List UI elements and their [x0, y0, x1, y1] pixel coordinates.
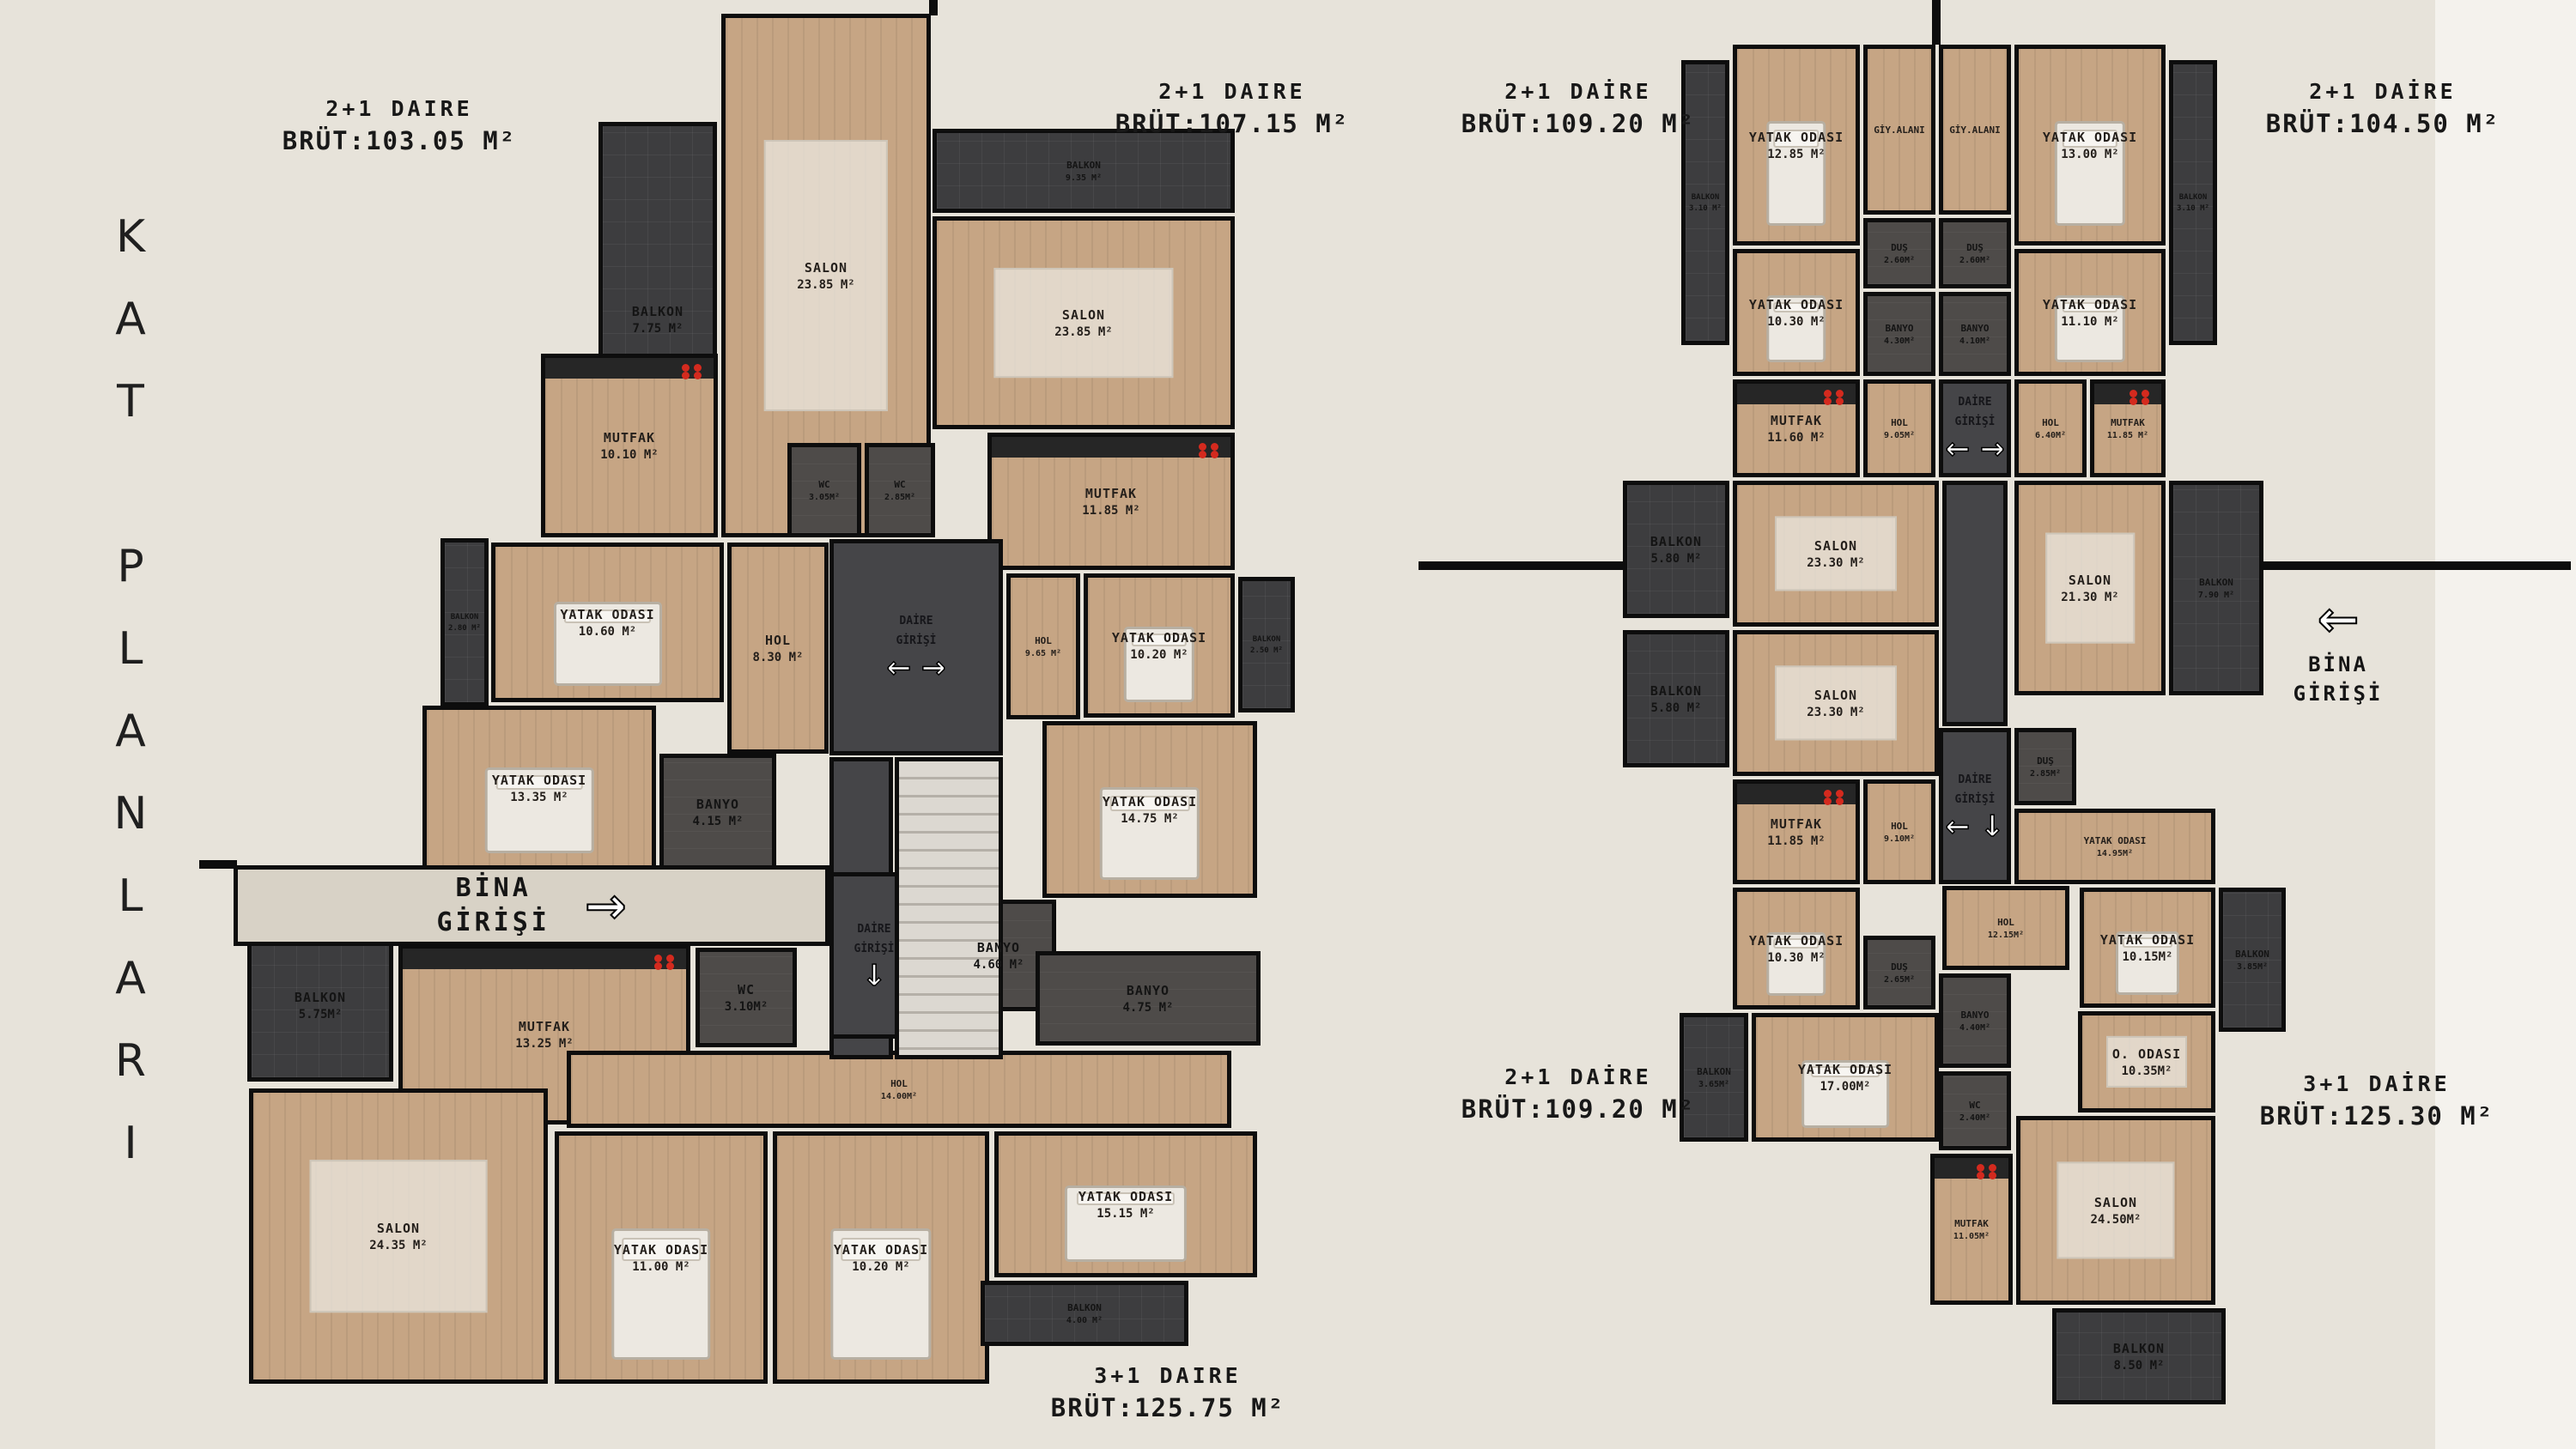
room-name: BALKON [1066, 160, 1102, 171]
daire-girisi-label-line2: GİRİŞİ [1955, 414, 1996, 431]
daire-girisi-label: DAİRE [1958, 394, 1991, 411]
room-name: BANYO [692, 797, 743, 812]
room-name: BALKON [1689, 193, 1722, 202]
room-salon-23-30-m: SALON23.30 M² [1733, 630, 1939, 776]
room-salon-23-30-m: SALON23.30 M² [1733, 481, 1939, 627]
room-label: MUTFAK11.60 M² [1767, 413, 1825, 445]
bed-icon [2055, 121, 2125, 226]
bed-icon [1100, 787, 1200, 880]
room-banyo-4-30m: BANYO4.30M² [1863, 292, 1935, 376]
stove-hob-icon [1211, 443, 1218, 451]
kitchen-counter-icon [2094, 384, 2161, 404]
room-area: 11.85 M² [1082, 504, 1139, 518]
room-label: MUTFAK13.25 M² [515, 1019, 573, 1051]
room-label: GİY.ALANI [1874, 124, 1925, 136]
room-name: BALKON [1250, 635, 1283, 644]
room-name: HOL [1988, 917, 2024, 928]
room-label: HOL14.00M² [881, 1078, 917, 1101]
room-label: YATAK ODASI14.95M² [2084, 835, 2147, 858]
bed-icon [2055, 295, 2125, 362]
room-name: BALKON [448, 613, 481, 621]
apartment-type: 3+1 DAİRE [2239, 1071, 2514, 1096]
room-label: BALKON3.10 M² [2177, 193, 2209, 213]
room-area: 7.90 M² [2198, 591, 2234, 600]
entrance-arrow-icon: → [585, 881, 627, 931]
room-area: 2.80 M² [448, 624, 481, 633]
entry-arrow-icon: ← → [1946, 434, 2005, 464]
room-yatak-odasi-14-75-m: YATAK ODASI14.75 M² [1042, 721, 1257, 898]
room-name: MUTFAK [515, 1019, 573, 1034]
apartment-type: 3+1 DAIRE [1022, 1363, 1314, 1388]
daire-girisi-label-line2: GİRİŞİ [1955, 791, 1996, 809]
room-label: BALKON5.80 M² [1650, 534, 1702, 566]
room-name: DUŞ [2030, 755, 2061, 767]
room-name: BALKON [2235, 949, 2269, 960]
entry-arrow-icon: ← → [887, 653, 946, 682]
room-balkon-3-85m: BALKON3.85M² [2219, 888, 2286, 1032]
room-area: 8.50 M² [2113, 1359, 2165, 1373]
room-name: HOL [881, 1078, 917, 1089]
room-hol-12-15m: HOL12.15M² [1942, 886, 2069, 970]
apartment-label-2-1-dai-re-br-t-104-50-m: 2+1 DAİREBRÜT:104.50 M² [2254, 79, 2512, 138]
bed-icon [2116, 931, 2179, 995]
room-du-2-60m: DUŞ2.60M² [1863, 218, 1935, 288]
floor-plan-canvas: KATPLANLARI BALKON7.75 M²SALON23.85 M²MU… [0, 0, 2576, 1449]
room-label: DUŞ2.60M² [1884, 242, 1915, 265]
room-label: WC3.10M² [725, 982, 769, 1014]
kitchen-counter-icon [992, 437, 1230, 458]
room-balkon-7-90-m: BALKON7.90 M² [2169, 481, 2263, 695]
rug-icon [993, 268, 1173, 378]
room-area: 13.25 M² [515, 1037, 573, 1051]
wall-line [929, 0, 938, 15]
room-label: BALKON3.85M² [2235, 949, 2269, 972]
room-label: HOL8.30 M² [752, 633, 803, 664]
room-name: BANYO [1122, 983, 1173, 998]
room-label: MUTFAK11.85 M² [2107, 417, 2148, 440]
room-hol-9-65-m: HOL9.65 M² [1006, 573, 1080, 719]
room-label: BALKON8.50 M² [2113, 1341, 2165, 1373]
building-entrance: ←BİNAGİRİŞİ [2274, 594, 2403, 708]
bed-icon [830, 1228, 931, 1361]
room-area: 3.10 M² [2177, 204, 2209, 213]
wall-line [199, 860, 237, 869]
room-label: BANYO4.75 M² [1122, 983, 1173, 1015]
room-name: MUTFAK [1082, 486, 1139, 501]
kitchen-counter-icon [1737, 784, 1856, 804]
room-name: BALKON [2177, 193, 2209, 202]
daire-girisi-label: DAİRE [857, 921, 890, 938]
room-name: DUŞ [1959, 242, 1990, 253]
room-label: MUTFAK11.85 M² [1082, 486, 1139, 518]
room-area: 5.80 M² [1650, 552, 1702, 566]
apartment-label-2-1-daire-br-t-107-15-m: 2+1 DAIREBRÜT:107.15 M² [1091, 79, 1374, 138]
entrance-arrow-icon: ← [2318, 594, 2360, 644]
room-wc-2-85m: WC2.85M² [865, 443, 935, 537]
kitchen-counter-icon [403, 949, 686, 969]
room-balkon-5-75m: BALKON5.75M² [247, 929, 393, 1082]
apartment-area: BRÜT:109.20 M² [1449, 109, 1707, 138]
bed-icon [553, 602, 661, 686]
room-area: 4.00 M² [1066, 1316, 1103, 1325]
room-name: BALKON [1650, 683, 1702, 699]
bed-icon [1124, 627, 1194, 702]
room-label: WC3.05M² [809, 479, 840, 502]
apartment-area: BRÜT:109.20 M² [1449, 1094, 1707, 1124]
room-label: BANYO4.40M² [1959, 1009, 1990, 1033]
page-title-letter: A [96, 278, 165, 361]
room-mutfak-11-85-m: MUTFAK11.85 M² [1733, 779, 1860, 884]
room-name: DUŞ [1884, 242, 1915, 253]
room-mutfak-11-05m: MUTFAK11.05M² [1930, 1154, 2013, 1305]
room-yatak-odasi-11-00-m: YATAK ODASI11.00 M² [555, 1131, 768, 1384]
room-area: 2.85M² [884, 493, 915, 502]
apartment-type: 2+1 DAİRE [1449, 79, 1707, 104]
page-title-gap [96, 443, 165, 525]
room-label: BANYO4.30M² [1884, 323, 1915, 346]
wall-line [1932, 0, 1941, 45]
room-label: BANYO4.10M² [1959, 323, 1990, 346]
apartment-area: BRÜT:125.75 M² [1022, 1393, 1314, 1422]
room-label: BALKON4.00 M² [1066, 1302, 1103, 1325]
room-area: 3.10M² [725, 1000, 769, 1014]
page-title: KATPLANLARI [96, 196, 165, 1185]
room-name: BANYO [1884, 323, 1915, 334]
bed-icon [1065, 1185, 1187, 1262]
page-title-letter: R [96, 1020, 165, 1102]
room-area: 4.75 M² [1122, 1001, 1173, 1015]
apartment-entry-core: DAİREGİRİŞİ← → [829, 539, 1003, 755]
wall-line [1419, 561, 1625, 570]
room-salon-24-50m: SALON24.50M² [2016, 1116, 2215, 1305]
room-area: 10.10 M² [600, 448, 658, 462]
room-area: 14.95M² [2084, 849, 2147, 858]
apartment-entry-core: DAİREGİRİŞİ← ↓ [1939, 728, 2011, 884]
room-balkon-4-00-m: BALKON4.00 M² [981, 1281, 1188, 1346]
room-label: MUTFAK11.85 M² [1767, 816, 1825, 848]
room-hol-8-30-m: HOL8.30 M² [727, 543, 829, 754]
room-balkon-5-80-m: BALKON5.80 M² [1623, 481, 1729, 618]
stove-hob-icon [694, 364, 702, 372]
apartment-type: 2+1 DAİRE [2254, 79, 2512, 104]
room-area: 4.10M² [1959, 336, 1990, 346]
bina-girisi-label: BİNAGİRİŞİ [2293, 651, 2384, 708]
room-name: YATAK ODASI [2084, 835, 2147, 846]
rug-icon [2106, 1036, 2187, 1088]
bed-icon [1801, 1060, 1889, 1128]
room-area: 12.15M² [1988, 931, 2024, 940]
room-area: 11.85 M² [1767, 834, 1825, 848]
room-label: BALKON3.10 M² [1689, 193, 1722, 213]
room-name: BALKON [295, 990, 346, 1005]
room-balkon-9-35-m: BALKON9.35 M² [933, 129, 1235, 213]
right-margin-panel [2435, 0, 2576, 1449]
room-name: BALKON [1650, 534, 1702, 549]
room-du-2-60m: DUŞ2.60M² [1939, 218, 2011, 288]
apartment-area: BRÜT:125.30 M² [2239, 1101, 2514, 1131]
room-label: BANYO4.15 M² [692, 797, 743, 828]
room-area: 8.30 M² [752, 651, 803, 664]
room-banyo-4-40m: BANYO4.40M² [1939, 973, 2011, 1068]
room-name: GİY.ALANI [1874, 124, 1925, 136]
apartment-area: BRÜT:104.50 M² [2254, 109, 2512, 138]
apartment-entry-core: DAİREGİRİŞİ← → [1939, 379, 2011, 477]
room-name: BALKON [2113, 1341, 2165, 1356]
room-hol-9-10m: HOL9.10M² [1863, 779, 1935, 884]
room-label: WC2.40M² [1959, 1100, 1990, 1123]
room-label: BALKON9.35 M² [1066, 160, 1102, 183]
room-area: 4.15 M² [692, 815, 743, 828]
apartment-label-3-1-daire-br-t-125-75-m: 3+1 DAIREBRÜT:125.75 M² [1022, 1363, 1314, 1422]
room-label: DUŞ2.85M² [2030, 755, 2061, 779]
room-salon-23-85-m: SALON23.85 M² [933, 216, 1235, 429]
room-name: MUTFAK [2107, 417, 2148, 428]
room-yatak-odasi-10-30-m: YATAK ODASI10.30 M² [1733, 249, 1860, 376]
apartment-area: BRÜT:107.15 M² [1091, 109, 1374, 138]
daire-girisi-label-line2: GİRİŞİ [896, 633, 937, 650]
room-area: 2.85M² [2030, 769, 2061, 779]
rug-icon [2045, 533, 2135, 644]
room-gi-y-alani-b: GİY.ALANI [1939, 45, 2011, 215]
room-yatak-odasi-15-15-m: YATAK ODASI15.15 M² [994, 1131, 1257, 1277]
room-label: GİY.ALANI [1949, 124, 2001, 136]
daire-girisi-label: DAİRE [899, 613, 933, 630]
room-area: 11.60 M² [1767, 431, 1825, 445]
page-title-letter: T [96, 361, 165, 443]
room-banyo-4-10m: BANYO4.10M² [1939, 292, 2011, 376]
room-yatak-odasi-17-00m: YATAK ODASI17.00M² [1752, 1013, 1939, 1142]
room-name: BALKON [632, 304, 683, 319]
room-name: HOL [752, 633, 803, 648]
room-area: 7.75 M² [632, 322, 683, 336]
room-name: HOL [1884, 821, 1915, 832]
room-area: 14.00M² [881, 1092, 917, 1101]
rug-icon [1775, 665, 1897, 740]
core-shaft [1942, 481, 2008, 726]
room-yatak-odasi-10-20-m: YATAK ODASI10.20 M² [773, 1131, 989, 1384]
room-name: HOL [1884, 417, 1915, 428]
apartment-label-2-1-dai-re-br-t-109-20-m: 2+1 DAİREBRÜT:109.20 M² [1449, 79, 1707, 138]
room-area: 2.65M² [1884, 975, 1915, 985]
room-du-2-65m: DUŞ2.65M² [1863, 936, 1935, 1009]
room-area: 9.10M² [1884, 834, 1915, 844]
room-hol-9-05m: HOL9.05M² [1863, 379, 1935, 477]
stove-hob-icon [1989, 1164, 1996, 1172]
bed-icon [485, 767, 594, 854]
room-label: HOL12.15M² [1988, 917, 2024, 940]
room-hol-6-40m: HOL6.40M² [2014, 379, 2087, 477]
entry-arrow-icon: ← ↓ [1946, 812, 2005, 841]
room-name: MUTFAK [600, 430, 658, 446]
rug-icon [310, 1160, 488, 1313]
page-title-letter: L [96, 608, 165, 690]
room-area: 3.85M² [2235, 962, 2269, 972]
room-mutfak-11-85-m: MUTFAK11.85 M² [2090, 379, 2166, 477]
room-name: MUTFAK [1953, 1218, 1990, 1229]
entry-arrow-icon: ↓ [862, 961, 887, 991]
room-yatak-odasi-12-85-m: YATAK ODASI12.85 M² [1733, 45, 1860, 246]
room-wc-2-40m: WC2.40M² [1939, 1071, 2011, 1150]
apartment-label-3-1-dai-re-br-t-125-30-m: 3+1 DAİREBRÜT:125.30 M² [2239, 1071, 2514, 1131]
stove-hob-icon [2142, 390, 2149, 397]
room-area: 2.60M² [1959, 256, 1990, 265]
page-title-letter: N [96, 773, 165, 855]
room-label: BALKON2.50 M² [1250, 635, 1283, 655]
apartment-area: BRÜT:103.05 M² [258, 126, 541, 155]
room-banyo-4-75-m: BANYO4.75 M² [1036, 951, 1261, 1046]
apartment-type: 2+1 DAİRE [1449, 1064, 1707, 1089]
room-label: DUŞ2.60M² [1959, 242, 1990, 265]
room-area: 2.60M² [1884, 256, 1915, 265]
room-area: 9.65 M² [1025, 649, 1061, 658]
page-title-letter: A [96, 937, 165, 1020]
room-yatak-odasi-10-15m: YATAK ODASI10.15M² [2080, 888, 2215, 1008]
room-balkon-2-80-m: BALKON2.80 M² [440, 538, 489, 706]
room-area: 3.10 M² [1689, 204, 1722, 213]
room-label: BALKON7.90 M² [2198, 577, 2234, 600]
room-name: HOL [1025, 635, 1061, 646]
room-balkon-5-80-m: BALKON5.80 M² [1623, 630, 1729, 767]
room-name: WC [725, 982, 769, 997]
room-label: HOL6.40M² [2035, 417, 2066, 440]
page-title-letter: P [96, 525, 165, 608]
bed-icon [1766, 121, 1826, 226]
daire-girisi-label-line2: GİRİŞİ [854, 941, 895, 958]
room-label: MUTFAK10.10 M² [600, 430, 658, 462]
wall-line [2263, 561, 2571, 570]
apartment-type: 2+1 DAIRE [1091, 79, 1374, 104]
stove-hob-icon [666, 955, 674, 962]
room-yatak-odasi-14-95m: YATAK ODASI14.95M² [2014, 809, 2215, 884]
room-area: 5.75M² [295, 1008, 346, 1022]
room-label: BALKON5.80 M² [1650, 683, 1702, 715]
room-label: DUŞ2.65M² [1884, 961, 1915, 985]
stove-hob-icon [1836, 390, 1844, 397]
daire-girisi-label: DAİRE [1958, 772, 1991, 789]
room-balkon-3-10-m: BALKON3.10 M² [2169, 60, 2217, 345]
rug-icon [764, 140, 888, 411]
kitchen-counter-icon [545, 358, 714, 379]
room-yatak-odasi-13-00-m: YATAK ODASI13.00 M² [2014, 45, 2166, 246]
room-area: 9.05M² [1884, 431, 1915, 440]
room-area: 5.80 M² [1650, 701, 1702, 715]
apartment-label-2-1-dai-re-br-t-109-20-m: 2+1 DAİREBRÜT:109.20 M² [1449, 1064, 1707, 1124]
room-mutfak-11-60-m: MUTFAK11.60 M² [1733, 379, 1860, 477]
room-mutfak-10-10-m: MUTFAK10.10 M² [541, 354, 718, 537]
staircase [895, 757, 1003, 1059]
bed-icon [1766, 295, 1826, 362]
room-salon-24-35-m: SALON24.35 M² [249, 1088, 548, 1384]
apartment-type: 2+1 DAIRE [258, 96, 541, 121]
room-area: 3.05M² [809, 493, 840, 502]
room-area: 2.50 M² [1250, 646, 1283, 655]
room-yatak-odasi-10-20-m: YATAK ODASI10.20 M² [1084, 573, 1235, 718]
room-balkon-8-50-m: BALKON8.50 M² [2052, 1308, 2226, 1404]
room-hol-14-00m: HOL14.00M² [567, 1051, 1231, 1128]
room-name: BALKON [1066, 1302, 1103, 1313]
room-name: MUTFAK [1767, 413, 1825, 428]
room-o-odasi-10-35m: O. ODASI10.35M² [2078, 1011, 2215, 1113]
room-yatak-odasi-13-35-m: YATAK ODASI13.35 M² [422, 706, 656, 870]
bed-icon [611, 1228, 710, 1361]
room-area: 4.40M² [1959, 1023, 1990, 1033]
kitchen-counter-icon [1737, 384, 1856, 404]
room-area: 9.35 M² [1066, 173, 1102, 183]
rug-icon [2057, 1161, 2174, 1258]
building-entrance: BİNAGİRİŞİ→ [234, 865, 829, 946]
apartment-label-2-1-daire-br-t-103-05-m: 2+1 DAIREBRÜT:103.05 M² [258, 96, 541, 155]
stove-hob-icon [1836, 790, 1844, 797]
page-title-letter: L [96, 855, 165, 937]
room-area: 11.05M² [1953, 1232, 1990, 1241]
bed-icon [1766, 932, 1826, 997]
bina-girisi-label: BİNAGİRİŞİ [437, 871, 550, 941]
room-yatak-odasi-10-30-m: YATAK ODASI10.30 M² [1733, 888, 1860, 1009]
room-label: BALKON5.75M² [295, 990, 346, 1022]
room-name: BANYO [1959, 323, 1990, 334]
room-name: WC [884, 479, 915, 490]
room-name: WC [1959, 1100, 1990, 1111]
room-area: 6.40M² [2035, 431, 2066, 440]
room-banyo-4-15-m: BANYO4.15 M² [659, 754, 776, 870]
room-label: BALKON2.80 M² [448, 613, 481, 633]
room-label: MUTFAK11.05M² [1953, 1218, 1990, 1241]
room-salon-21-30-m: SALON21.30 M² [2014, 481, 2166, 695]
room-mutfak-11-85-m: MUTFAK11.85 M² [987, 433, 1235, 570]
room-area: 2.40M² [1959, 1113, 1990, 1123]
room-name: BALKON [2198, 577, 2234, 588]
room-wc-3-10m: WC3.10M² [696, 948, 797, 1047]
room-label: WC2.85M² [884, 479, 915, 502]
page-title-letter: I [96, 1102, 165, 1185]
room-balkon-2-50-m: BALKON2.50 M² [1238, 577, 1295, 712]
room-area: 4.30M² [1884, 336, 1915, 346]
page-title-letter: K [96, 196, 165, 278]
rug-icon [1775, 516, 1897, 591]
room-gi-y-alani-b: GİY.ALANI [1863, 45, 1935, 215]
page-title-letter: A [96, 690, 165, 773]
room-area: 11.85 M² [2107, 431, 2148, 440]
room-name: WC [809, 479, 840, 490]
room-name: DUŞ [1884, 961, 1915, 973]
room-label: HOL9.65 M² [1025, 635, 1061, 658]
room-label: HOL9.10M² [1884, 821, 1915, 844]
room-label: BALKON7.75 M² [632, 304, 683, 336]
room-name: HOL [2035, 417, 2066, 428]
room-name: MUTFAK [1767, 816, 1825, 832]
room-name: GİY.ALANI [1949, 124, 2001, 136]
room-du-2-85m: DUŞ2.85M² [2014, 728, 2076, 805]
room-wc-3-05m: WC3.05M² [787, 443, 861, 537]
room-yatak-odasi-10-60-m: YATAK ODASI10.60 M² [491, 543, 724, 702]
room-yatak-odasi-11-10-m: YATAK ODASI11.10 M² [2014, 249, 2166, 376]
room-label: HOL9.05M² [1884, 417, 1915, 440]
kitchen-counter-icon [1935, 1158, 2008, 1179]
room-name: BANYO [1959, 1009, 1990, 1021]
